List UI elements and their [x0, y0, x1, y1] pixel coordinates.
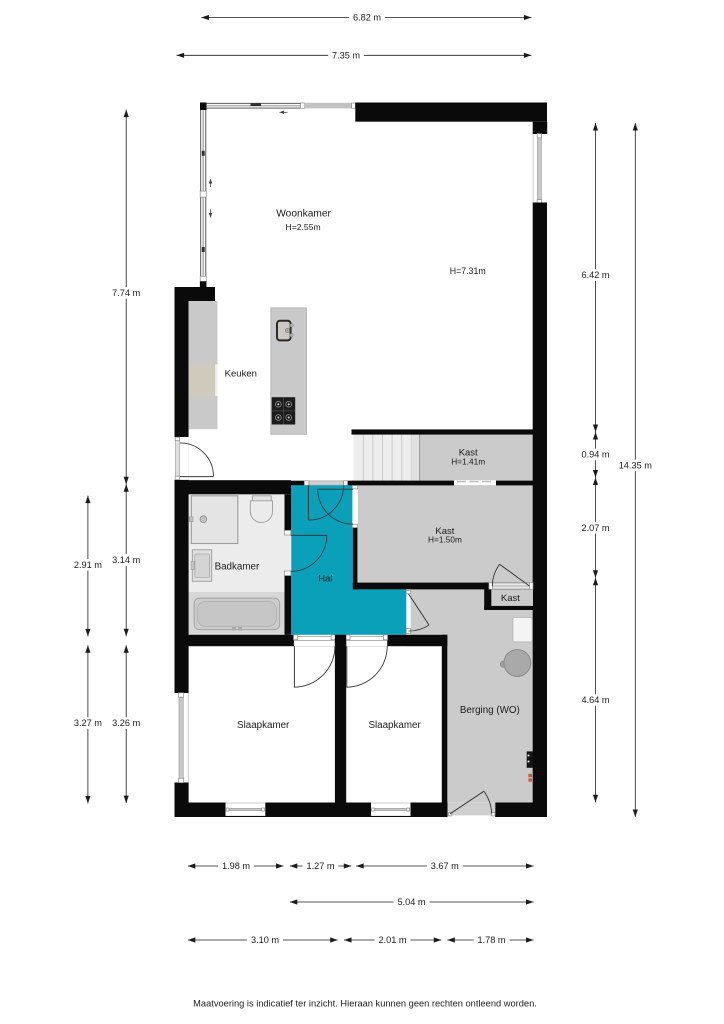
svg-text:5.04 m: 5.04 m — [397, 897, 425, 907]
svg-text:1.98 m: 1.98 m — [222, 861, 250, 871]
svg-text:6.82 m: 6.82 m — [353, 13, 381, 23]
svg-text:7.74 m: 7.74 m — [112, 288, 140, 298]
svg-text:7.35 m: 7.35 m — [332, 51, 360, 61]
svg-text:1.78 m: 1.78 m — [477, 935, 505, 945]
svg-text:Maatvoering is indicatief ter: Maatvoering is indicatief ter inzicht. H… — [193, 998, 537, 1008]
svg-text:Woonkamer: Woonkamer — [276, 209, 331, 220]
svg-text:H=1.50m: H=1.50m — [428, 535, 462, 545]
svg-text:2.01 m: 2.01 m — [378, 935, 406, 945]
svg-text:Slaapkamer: Slaapkamer — [368, 720, 421, 731]
svg-text:3.10 m: 3.10 m — [251, 935, 279, 945]
svg-text:Badkamer: Badkamer — [215, 562, 260, 573]
svg-text:Berging (WO): Berging (WO) — [460, 705, 520, 716]
svg-text:H=2.55m: H=2.55m — [286, 222, 321, 232]
svg-text:3.67 m: 3.67 m — [431, 861, 459, 871]
svg-text:Hal: Hal — [318, 574, 332, 585]
svg-text:2.91 m: 2.91 m — [74, 560, 102, 570]
svg-text:Kast: Kast — [501, 593, 520, 604]
svg-text:2.07 m: 2.07 m — [581, 523, 609, 533]
svg-text:Slaapkamer: Slaapkamer — [237, 720, 290, 731]
svg-text:H=1.41m: H=1.41m — [451, 457, 485, 467]
svg-text:H=7.31m: H=7.31m — [450, 266, 486, 276]
svg-text:3.27 m: 3.27 m — [74, 718, 102, 728]
svg-text:0.94 m: 0.94 m — [581, 450, 609, 460]
svg-text:3.14 m: 3.14 m — [112, 555, 140, 565]
svg-text:14.35 m: 14.35 m — [619, 461, 653, 471]
svg-text:6.42 m: 6.42 m — [581, 270, 609, 280]
svg-text:4.64 m: 4.64 m — [581, 695, 609, 705]
svg-text:1.27 m: 1.27 m — [306, 861, 334, 871]
svg-text:3.26 m: 3.26 m — [112, 718, 140, 728]
svg-text:Keuken: Keuken — [225, 369, 257, 380]
